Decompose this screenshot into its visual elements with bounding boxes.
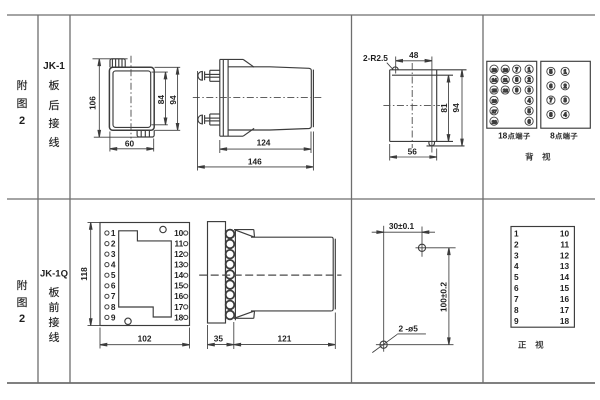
svg-text:9: 9 — [111, 312, 116, 322]
svg-text:13: 13 — [174, 260, 184, 270]
svg-text:1: 1 — [528, 67, 531, 73]
svg-text:4: 4 — [564, 113, 567, 119]
svg-text:4: 4 — [514, 261, 519, 271]
svg-text:60: 60 — [125, 139, 135, 149]
svg-text:18: 18 — [174, 312, 184, 322]
svg-text:11: 11 — [503, 78, 508, 84]
svg-text:6: 6 — [528, 119, 531, 125]
svg-text:5: 5 — [111, 270, 116, 280]
svg-text:8: 8 — [514, 305, 519, 315]
svg-text:2-R2.5: 2-R2.5 — [363, 53, 388, 63]
svg-text:94: 94 — [168, 95, 178, 105]
svg-text:81: 81 — [439, 103, 449, 113]
svg-text:18: 18 — [560, 316, 570, 326]
svg-text:7: 7 — [514, 294, 519, 304]
svg-text:9: 9 — [514, 316, 519, 326]
svg-text:8: 8 — [515, 78, 518, 84]
svg-text:8: 8 — [549, 113, 552, 119]
svg-text:94: 94 — [451, 103, 461, 113]
svg-text:146: 146 — [248, 156, 262, 166]
svg-text:15: 15 — [492, 88, 497, 94]
svg-text:2: 2 — [514, 239, 519, 249]
svg-text:3: 3 — [514, 250, 519, 260]
svg-text:14: 14 — [492, 78, 497, 84]
svg-text:3: 3 — [564, 98, 567, 104]
svg-text:2 -ø5: 2 -ø5 — [399, 324, 419, 334]
svg-text:106: 106 — [88, 96, 98, 110]
svg-text:56: 56 — [408, 146, 418, 156]
svg-text:118: 118 — [79, 267, 89, 281]
svg-text:18: 18 — [492, 119, 497, 125]
svg-text:6: 6 — [514, 283, 519, 293]
svg-text:JK-1: JK-1 — [43, 61, 65, 72]
svg-text:2: 2 — [19, 313, 25, 325]
svg-text:102: 102 — [138, 333, 152, 343]
svg-text:30±0.1: 30±0.1 — [389, 221, 415, 231]
svg-text:1: 1 — [564, 70, 567, 76]
svg-text:17: 17 — [174, 302, 184, 312]
svg-text:16: 16 — [492, 99, 497, 105]
svg-text:48: 48 — [409, 50, 419, 60]
svg-text:2: 2 — [19, 115, 25, 127]
svg-text:10: 10 — [560, 228, 570, 238]
svg-text:9: 9 — [515, 88, 518, 94]
svg-text:10: 10 — [174, 228, 184, 238]
svg-text:8: 8 — [550, 131, 555, 141]
svg-text:13: 13 — [492, 67, 497, 73]
svg-text:4: 4 — [528, 99, 531, 105]
svg-text:4: 4 — [111, 260, 116, 270]
svg-text:1: 1 — [111, 228, 116, 238]
svg-text:17: 17 — [560, 305, 570, 315]
svg-text:7: 7 — [111, 291, 116, 301]
svg-text:3: 3 — [111, 249, 116, 259]
svg-text:13: 13 — [560, 261, 570, 271]
svg-text:7: 7 — [515, 67, 518, 73]
svg-text:16: 16 — [174, 291, 184, 301]
svg-text:5: 5 — [528, 109, 531, 115]
svg-text:5: 5 — [549, 70, 552, 76]
svg-text:2: 2 — [111, 238, 116, 248]
svg-text:12: 12 — [503, 88, 508, 94]
svg-text:15: 15 — [560, 283, 570, 293]
svg-text:124: 124 — [257, 138, 271, 148]
svg-text:121: 121 — [277, 333, 291, 343]
svg-text:84: 84 — [156, 95, 166, 105]
svg-text:8: 8 — [111, 302, 116, 312]
svg-text:1: 1 — [514, 228, 519, 238]
svg-text:12: 12 — [560, 250, 570, 260]
svg-text:11: 11 — [560, 239, 569, 249]
svg-text:14: 14 — [174, 270, 184, 280]
svg-text:11: 11 — [175, 238, 184, 248]
svg-text:5: 5 — [514, 272, 519, 282]
svg-text:6: 6 — [549, 84, 552, 90]
svg-text:14: 14 — [560, 272, 570, 282]
svg-text:2: 2 — [564, 84, 567, 90]
svg-text:17: 17 — [492, 109, 497, 115]
svg-text:10: 10 — [503, 67, 508, 73]
svg-text:35: 35 — [214, 333, 224, 343]
svg-text:2: 2 — [528, 78, 531, 84]
svg-text:12: 12 — [174, 249, 184, 259]
svg-text:6: 6 — [111, 281, 116, 291]
svg-text:16: 16 — [560, 294, 570, 304]
svg-text:7: 7 — [549, 98, 552, 104]
svg-text:100±0.2: 100±0.2 — [438, 282, 448, 312]
svg-text:JK-1Q: JK-1Q — [40, 269, 68, 280]
svg-text:18: 18 — [498, 131, 508, 141]
svg-text:15: 15 — [174, 281, 184, 291]
svg-text:3: 3 — [528, 88, 531, 94]
